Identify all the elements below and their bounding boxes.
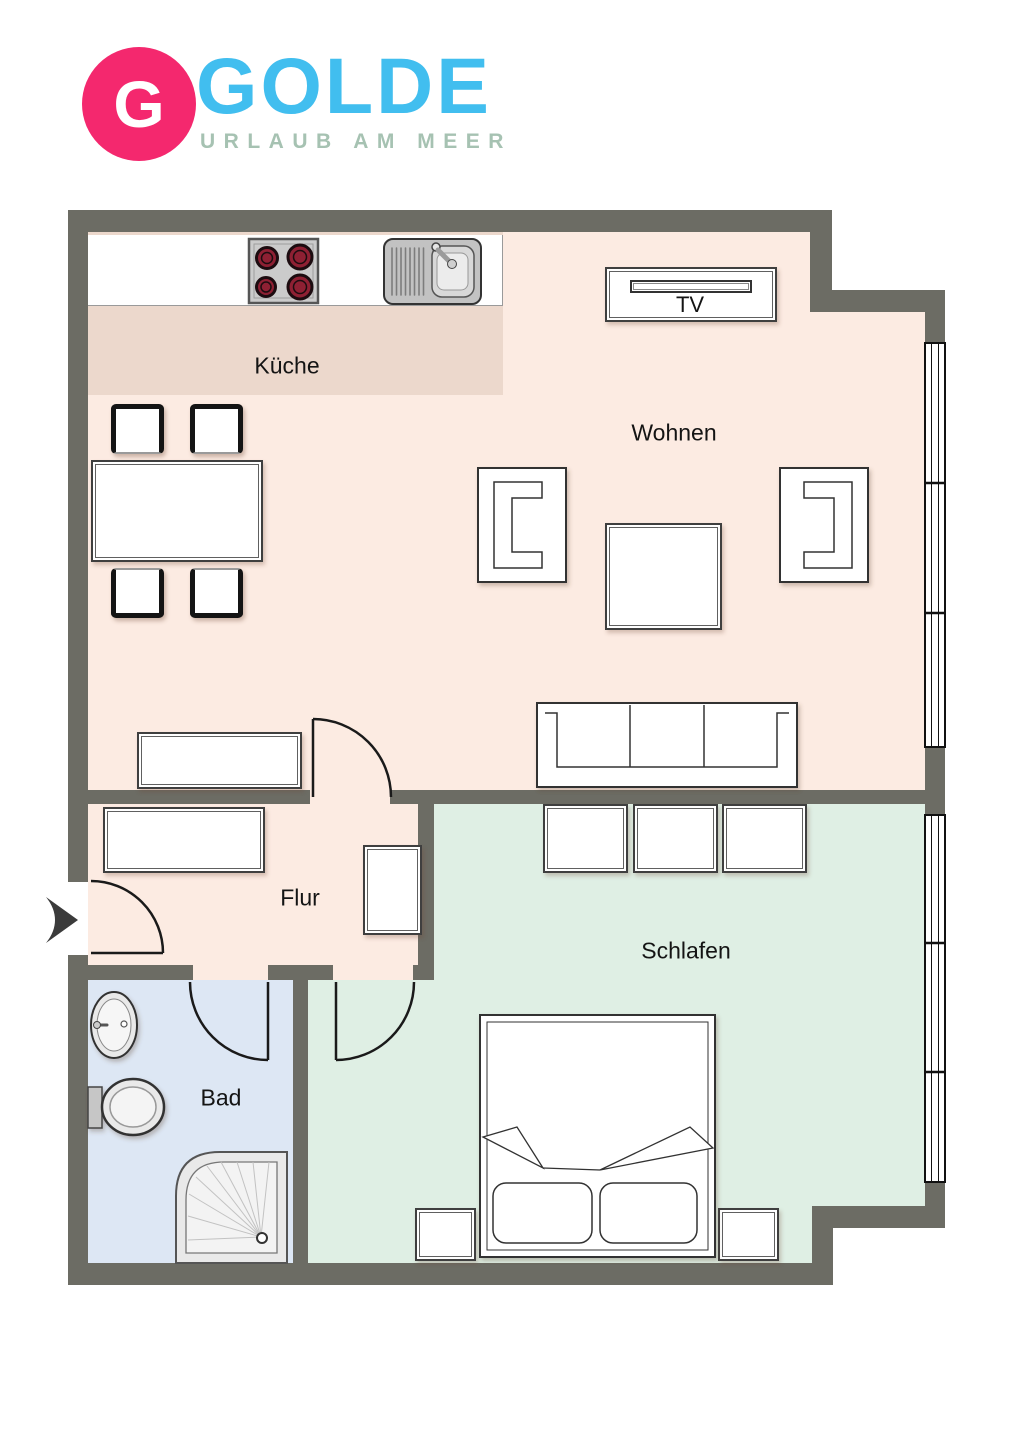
wall-right-upper (925, 290, 945, 345)
kitchen-counter (88, 235, 503, 306)
dining-chair (111, 568, 164, 618)
schlafen-floor (812, 965, 927, 1207)
wardrobe-section (722, 804, 807, 873)
wall-bath-right (293, 965, 308, 1263)
room-label-flur: Flur (280, 885, 320, 912)
coffee-table (605, 523, 722, 630)
dining-chair (190, 404, 243, 454)
window-bedroom-icon (925, 815, 945, 1182)
wall-right-mid (925, 745, 945, 817)
wall-left-lower (68, 955, 88, 1285)
dining-chair (190, 568, 243, 618)
logo-badge-letter: G (113, 66, 164, 142)
room-label-schlafen: Schlafen (641, 938, 731, 965)
wall-hall-bottom-a (88, 965, 193, 980)
dining-table (91, 460, 263, 562)
wall-bottom (68, 1263, 833, 1285)
wall-top (68, 210, 832, 232)
nightstand (718, 1208, 779, 1261)
entrance-arrow-icon (46, 897, 78, 943)
wardrobe-section (543, 804, 628, 873)
wardrobe-section (633, 804, 718, 873)
wall-hall-bottom-c (413, 965, 434, 980)
bad-floor (88, 965, 308, 1263)
wohnen-floor (810, 312, 927, 790)
sideboard-hall (103, 807, 265, 873)
wall-living-bedroom (390, 790, 927, 804)
room-label-wohnen: Wohnen (631, 420, 716, 447)
logo-badge: G (82, 47, 196, 161)
logo-tagline: URLAUB AM MEER (200, 130, 512, 154)
dining-chair (111, 404, 164, 454)
sideboard-living (137, 732, 302, 789)
window-living-icon (925, 343, 945, 747)
room-label-kueche: Küche (254, 353, 319, 380)
wall-left-upper (68, 210, 88, 882)
wall-living-hall-left (88, 790, 310, 804)
nightstand (415, 1208, 476, 1261)
cabinet-hall (363, 845, 422, 935)
logo-brand: GOLDE (196, 46, 492, 125)
tv-label: TV (676, 292, 704, 318)
room-label-bad: Bad (201, 1085, 242, 1112)
